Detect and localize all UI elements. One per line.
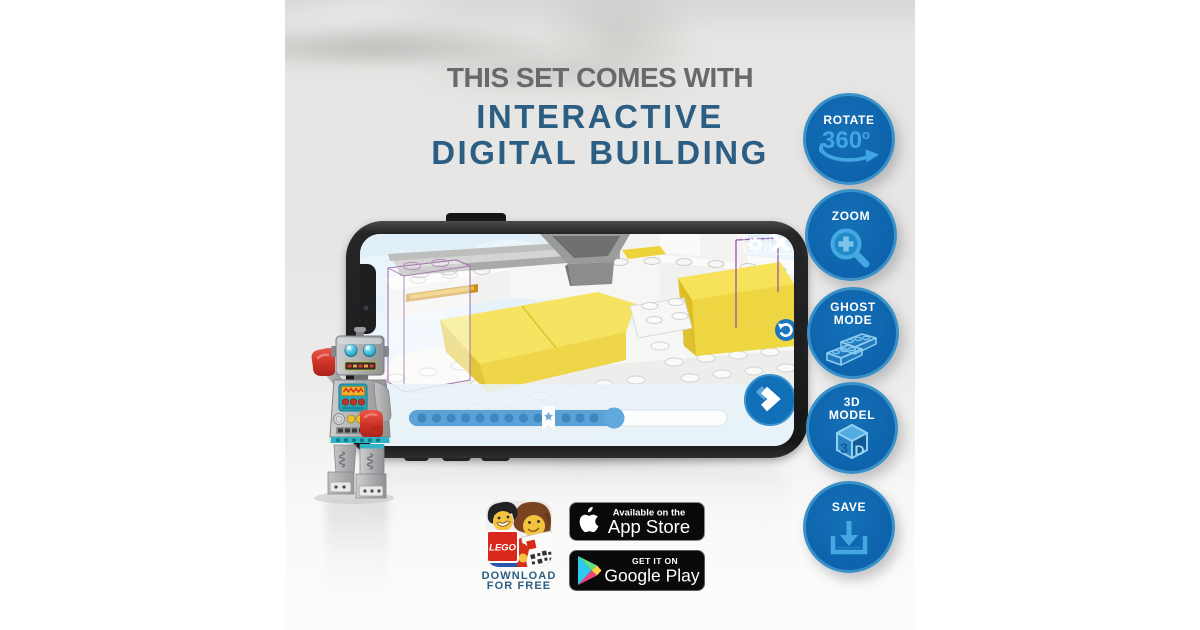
svg-text:D: D — [854, 442, 864, 458]
svg-text:App Store: App Store — [608, 516, 690, 537]
svg-text:GET IT ON: GET IT ON — [632, 556, 678, 566]
svg-text:3: 3 — [840, 440, 848, 456]
svg-text:Google Play: Google Play — [604, 566, 700, 586]
svg-text:LEGO: LEGO — [489, 543, 517, 554]
